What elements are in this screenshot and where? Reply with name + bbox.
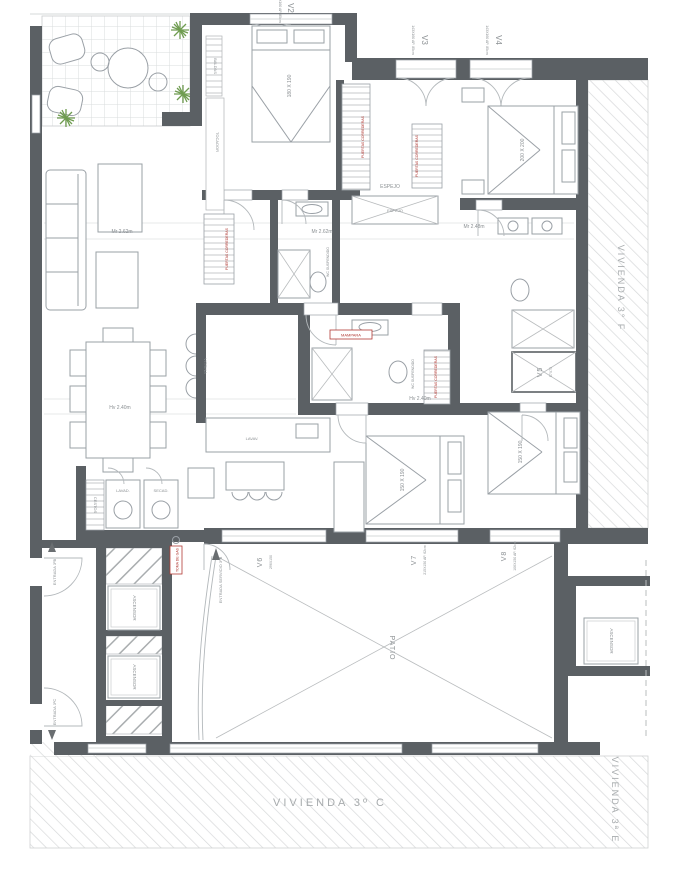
window-v8-dims: 106X150 AP. 62cm (513, 541, 517, 571)
cestos-label: CESTOS (93, 497, 98, 514)
arrow-down-icon (48, 730, 56, 740)
mampara-note: MAMPARA (341, 333, 361, 338)
tall-unit (334, 462, 364, 532)
window-v3-id: V3 (420, 35, 429, 45)
wardrobe-note: PUERTAS CORREDERAS (415, 134, 419, 177)
window-v4-id: V4 (494, 35, 503, 45)
window-v2-dims: 143X160 AP. 85cm (278, 0, 282, 23)
window-v8-id: V8 (501, 551, 508, 562)
height-label: Mr 2.62m (111, 229, 132, 235)
elevator-label: ASCENSOR (132, 595, 137, 621)
height-label: Mr 2.62m (311, 229, 332, 235)
kitchen-counter (206, 418, 330, 452)
wardrobe-note: PUERTAS CORREDERAS (434, 355, 438, 398)
window-v2-id: V2 (286, 3, 295, 13)
living-room (46, 164, 196, 472)
sink (532, 218, 562, 234)
neighbour-label-c: VIVIENDA 3º C (273, 797, 387, 809)
wardrobe-note: PUERTAS CORREDERAS (361, 115, 365, 158)
vitrina-shelves (186, 334, 196, 398)
secad-label: SECAD. (154, 488, 169, 493)
nightstand (462, 180, 484, 194)
height-label: Hv 2.40m (409, 396, 430, 402)
laundry (86, 468, 178, 530)
toilet (511, 279, 529, 301)
dining-chair (150, 386, 166, 412)
stools (232, 492, 282, 500)
dining-chair (70, 350, 86, 376)
neighbour-label-f: VIVIENDA 3° F (616, 245, 626, 332)
dining-chair (103, 458, 133, 472)
patio-label: PATIO (388, 636, 395, 661)
dressing-area (342, 84, 442, 224)
window-v5-id: V5 (537, 367, 544, 378)
espejo-label: ESPEJO (387, 208, 403, 213)
nightstand (462, 88, 484, 102)
bed-size: 150 X 190 (518, 440, 524, 463)
dining-chair (103, 328, 133, 342)
gas-note: TOMA DE GAS (176, 547, 180, 572)
wc-label: WC SUSPENDIDO (411, 359, 415, 389)
cabinet (188, 468, 214, 498)
bedroom-4 (488, 412, 580, 494)
lavav-label: LAVAV. (246, 436, 259, 441)
dining-table (86, 342, 150, 458)
height-label: Mr 2.48m (463, 224, 484, 230)
kitchen-island (226, 462, 284, 490)
window-v4-dims: 143X160 AP. 85cm (485, 25, 489, 55)
bathroom-1 (278, 200, 328, 298)
patio (198, 556, 552, 740)
service-entrance-label: ENTRADA SERVICIO 3ºB (218, 556, 223, 603)
toilet (310, 272, 326, 292)
floor-plan-drawing: PUERTAS CORREDERAS PUERTAS CORREDERAS PU… (0, 0, 674, 874)
bedroom-1 (204, 26, 330, 284)
entrance-c-label: ENTRADA 3ºC (52, 699, 57, 726)
entrance-b-label: ENTRADA 3ºB (52, 558, 57, 585)
neighbour-label-e: VIVIENDA 3ª E (610, 757, 620, 844)
sofa (46, 170, 86, 310)
shaft-hatches (106, 548, 162, 734)
floor-plan: PUERTAS CORREDERAS PUERTAS CORREDERAS PU… (0, 0, 674, 874)
bed-size: 150 X 190 (400, 468, 406, 491)
wardrobe-note: PUERTAS CORREDERAS (225, 227, 229, 270)
toilet (389, 361, 407, 383)
tocador-counter (206, 98, 224, 210)
bathroom-3 (306, 315, 407, 400)
bed-size: 200 X 200 (520, 138, 526, 161)
terrace-table (108, 48, 148, 88)
dining-chair (150, 422, 166, 448)
tocador-label: TOCADOR (215, 132, 220, 152)
elevator-label: ASCENSOR (609, 628, 614, 654)
elevator-label: ASCENSOR (132, 664, 137, 690)
dining-chair (150, 350, 166, 376)
window-v5-dims: 57X75 (549, 367, 553, 377)
terrace (30, 14, 202, 127)
lavad-label: LAVAD. (116, 488, 130, 493)
wardrobe (204, 214, 234, 284)
wc-label: WC SUSPENDIDO (326, 247, 330, 277)
shaft-v5 (512, 352, 576, 392)
window-v3-dims: 143X160 AP. 85cm (411, 25, 415, 55)
dining-chair (70, 386, 86, 412)
bed-size: 180 X 190 (287, 74, 293, 97)
dining-chair (70, 422, 86, 448)
window-v6-id: V6 (257, 557, 264, 568)
coffee-table (96, 252, 138, 308)
vitrina-label: VITRINA (203, 358, 208, 374)
window-v7-dims: 215X150 AP. 62cm (423, 545, 427, 575)
window-v6-dims: 296X150 (269, 555, 273, 569)
kitchen (188, 418, 364, 532)
espejo-label: ESPEJO (380, 184, 400, 190)
window-v7-id: V7 (411, 555, 418, 566)
bathroom-2 (478, 210, 574, 348)
baldas-label: BALDAS (213, 58, 218, 74)
height-label: Hv 2.40m (109, 405, 130, 411)
wardrobe (342, 84, 370, 190)
console-table (98, 164, 142, 232)
